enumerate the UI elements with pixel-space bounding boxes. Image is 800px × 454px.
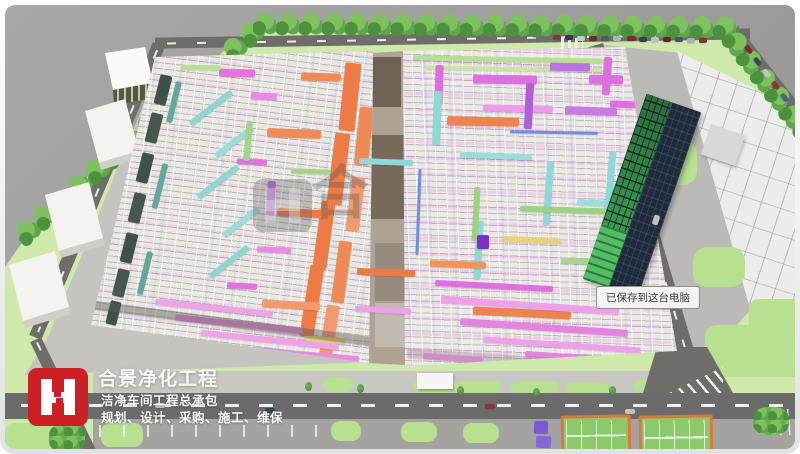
car bbox=[639, 37, 647, 42]
car bbox=[762, 68, 771, 78]
watermark-logo bbox=[253, 179, 312, 232]
car bbox=[675, 37, 683, 42]
watermark-character: 合 bbox=[311, 165, 369, 223]
car bbox=[663, 37, 671, 42]
car bbox=[753, 56, 762, 66]
car bbox=[687, 38, 695, 43]
car bbox=[613, 36, 621, 41]
car bbox=[577, 36, 585, 41]
image-frame: 合 已保存到这台电脑 合景净化工程 洁净车间工程总承包 规划、设计、采购、施工、… bbox=[0, 0, 800, 454]
car bbox=[744, 44, 753, 54]
car bbox=[780, 92, 789, 102]
car bbox=[565, 35, 573, 40]
brand-logo bbox=[28, 368, 88, 426]
brand-title: 合景净化工程 bbox=[98, 364, 218, 391]
car bbox=[601, 36, 609, 41]
car bbox=[699, 38, 707, 43]
car bbox=[651, 37, 659, 42]
car bbox=[589, 36, 597, 41]
car bbox=[485, 404, 495, 409]
save-toast: 已保存到这台电脑 bbox=[596, 286, 700, 309]
car bbox=[627, 36, 636, 41]
car bbox=[625, 409, 635, 414]
car bbox=[771, 80, 780, 90]
car bbox=[652, 214, 661, 225]
car bbox=[553, 35, 561, 40]
brand-services: 规划、设计、采购、施工、维保 bbox=[101, 407, 283, 426]
